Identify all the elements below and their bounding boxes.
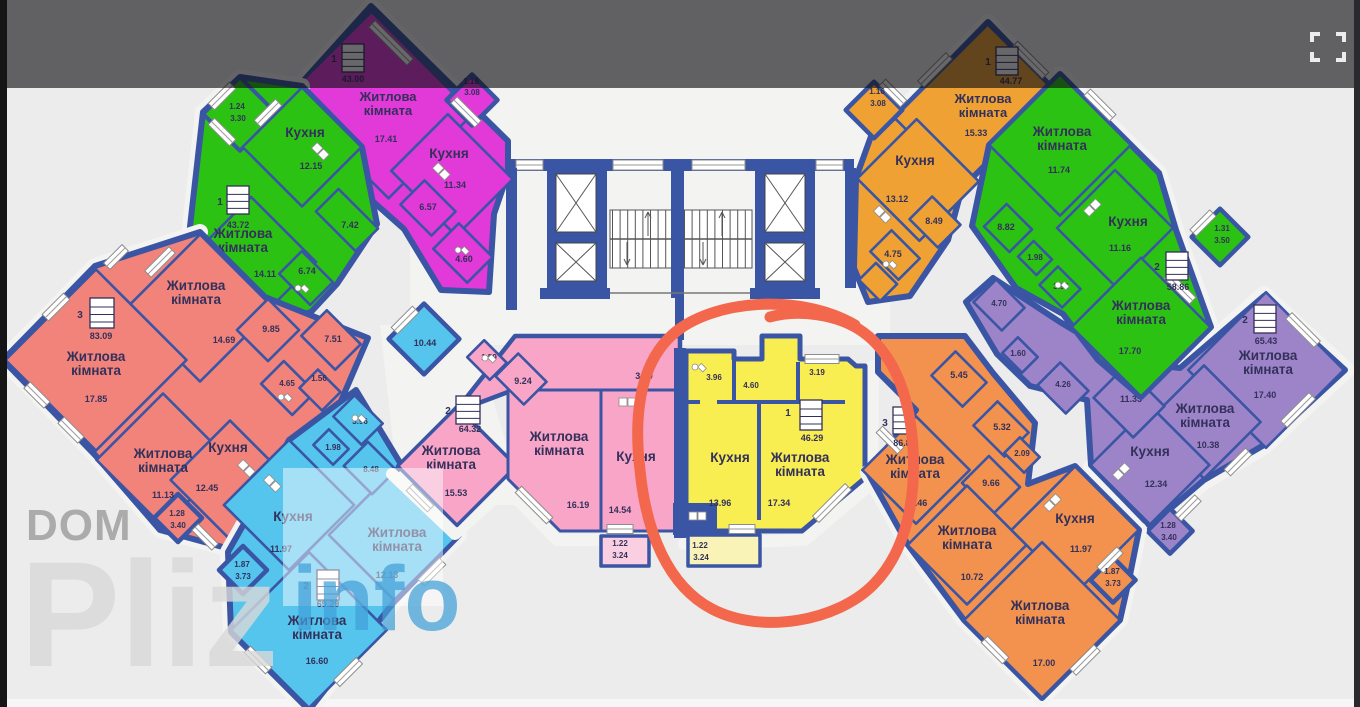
svg-text:1: 1 xyxy=(785,408,791,419)
svg-text:3.24: 3.24 xyxy=(693,553,709,562)
svg-text:1: 1 xyxy=(217,197,223,208)
svg-text:1.60: 1.60 xyxy=(1010,349,1026,358)
svg-text:Житлова: Житлова xyxy=(1032,124,1092,139)
svg-text:17.00: 17.00 xyxy=(1033,658,1056,668)
svg-text:16.60: 16.60 xyxy=(306,656,329,666)
svg-text:13.12: 13.12 xyxy=(886,194,909,204)
svg-text:3.19: 3.19 xyxy=(809,368,825,377)
svg-text:Житлова: Житлова xyxy=(166,278,226,293)
svg-text:15.33: 15.33 xyxy=(965,128,988,138)
svg-text:3: 3 xyxy=(882,418,888,429)
svg-text:Житлова: Житлова xyxy=(1238,348,1298,363)
svg-text:3.40: 3.40 xyxy=(170,521,186,530)
svg-text:кімната: кімната xyxy=(138,460,188,475)
svg-text:Житлова: Житлова xyxy=(770,450,830,465)
svg-text:Житлова: Житлова xyxy=(953,91,1012,106)
svg-text:Житлова: Житлова xyxy=(358,89,417,104)
svg-text:Житлова: Житлова xyxy=(213,226,273,241)
svg-text:кімната: кімната xyxy=(775,464,825,479)
svg-text:Житлова: Житлова xyxy=(1175,401,1235,416)
svg-text:4.65: 4.65 xyxy=(279,379,295,388)
svg-text:10.38: 10.38 xyxy=(1197,440,1220,450)
svg-text:3.73: 3.73 xyxy=(1105,579,1121,588)
svg-text:Кухня: Кухня xyxy=(285,125,324,140)
svg-text:10.72: 10.72 xyxy=(961,572,984,582)
svg-text:кімната: кімната xyxy=(1037,138,1087,153)
svg-text:1.87: 1.87 xyxy=(1104,567,1120,576)
svg-text:6.74: 6.74 xyxy=(298,266,316,276)
svg-text:3.24: 3.24 xyxy=(612,551,628,560)
svg-text:Житлова: Житлова xyxy=(1111,298,1171,313)
svg-text:9.85: 9.85 xyxy=(262,324,280,334)
svg-text:Кухня: Кухня xyxy=(710,450,749,465)
svg-text:1.98: 1.98 xyxy=(1027,253,1043,262)
svg-text:17.34: 17.34 xyxy=(768,498,791,508)
svg-text:14.69: 14.69 xyxy=(213,335,236,345)
svg-text:info: info xyxy=(292,548,461,650)
svg-text:3.30: 3.30 xyxy=(230,114,246,123)
svg-text:12.45: 12.45 xyxy=(196,483,219,493)
svg-text:1.31: 1.31 xyxy=(1214,224,1230,233)
svg-text:3.08: 3.08 xyxy=(464,88,480,97)
svg-text:9.24: 9.24 xyxy=(514,376,532,386)
svg-text:15.53: 15.53 xyxy=(445,488,468,498)
svg-text:кімната: кімната xyxy=(1116,312,1166,327)
svg-text:3.40: 3.40 xyxy=(1161,533,1177,542)
svg-text:3.08: 3.08 xyxy=(870,99,886,108)
svg-text:кімната: кімната xyxy=(534,443,584,458)
svg-text:58.86: 58.86 xyxy=(1167,282,1190,292)
svg-text:4.60: 4.60 xyxy=(455,254,473,264)
svg-text:8.49: 8.49 xyxy=(925,216,943,226)
svg-text:14.11: 14.11 xyxy=(254,269,276,279)
svg-text:кімната: кімната xyxy=(1015,612,1065,627)
svg-text:14.54: 14.54 xyxy=(609,505,632,515)
svg-text:Кухня: Кухня xyxy=(1130,444,1169,459)
svg-text:1.98: 1.98 xyxy=(325,443,341,452)
svg-text:Житлова: Житлова xyxy=(937,523,997,538)
svg-text:Житлова: Житлова xyxy=(529,429,589,444)
svg-text:Кухня: Кухня xyxy=(208,440,247,455)
svg-text:Житлова: Житлова xyxy=(133,446,193,461)
svg-text:4.60: 4.60 xyxy=(743,381,759,390)
svg-text:5.32: 5.32 xyxy=(993,422,1011,432)
svg-text:2.09: 2.09 xyxy=(1014,449,1030,458)
svg-text:11.13: 11.13 xyxy=(152,490,174,500)
svg-text:16.19: 16.19 xyxy=(567,500,590,510)
svg-text:6.57: 6.57 xyxy=(419,202,437,212)
svg-text:Кухня: Кухня xyxy=(1055,511,1094,526)
svg-text:5.45: 5.45 xyxy=(950,370,968,380)
svg-text:Pliz: Pliz xyxy=(20,530,278,698)
svg-text:кімната: кімната xyxy=(959,105,1008,120)
svg-text:13.96: 13.96 xyxy=(709,498,732,508)
svg-text:1.56: 1.56 xyxy=(311,374,327,383)
svg-text:кімната: кімната xyxy=(71,363,121,378)
svg-text:кімната: кімната xyxy=(942,537,992,552)
svg-text:7.51: 7.51 xyxy=(324,334,342,344)
svg-text:Кухня: Кухня xyxy=(429,146,468,161)
svg-text:64.32: 64.32 xyxy=(459,424,482,434)
svg-text:Житлова: Житлова xyxy=(1010,598,1070,613)
svg-text:11.74: 11.74 xyxy=(1048,165,1070,175)
svg-text:10.44: 10.44 xyxy=(414,338,437,348)
svg-text:17.40: 17.40 xyxy=(1254,390,1277,400)
svg-text:кімната: кімната xyxy=(364,103,413,118)
svg-text:4.70: 4.70 xyxy=(991,299,1007,308)
svg-text:83.09: 83.09 xyxy=(90,331,113,341)
svg-text:Кухня: Кухня xyxy=(1108,214,1147,229)
svg-text:1.16: 1.16 xyxy=(869,87,885,96)
svg-text:17.70: 17.70 xyxy=(1119,346,1142,356)
svg-text:1.22: 1.22 xyxy=(612,539,628,548)
svg-text:7.42: 7.42 xyxy=(341,220,359,230)
svg-text:3: 3 xyxy=(77,310,83,321)
svg-text:Житлова: Житлова xyxy=(66,349,126,364)
svg-text:8.82: 8.82 xyxy=(997,222,1015,232)
svg-text:4.75: 4.75 xyxy=(884,249,902,259)
svg-text:Кухня: Кухня xyxy=(895,153,934,168)
svg-text:12.15: 12.15 xyxy=(300,161,323,171)
svg-text:1.28: 1.28 xyxy=(169,509,185,518)
svg-text:11.97: 11.97 xyxy=(1070,544,1092,554)
svg-text:Житлова: Житлова xyxy=(421,443,481,458)
svg-text:3.50: 3.50 xyxy=(1214,236,1230,245)
svg-text:3.96: 3.96 xyxy=(706,373,722,382)
svg-text:4.26: 4.26 xyxy=(1055,380,1071,389)
svg-text:кімната: кімната xyxy=(1243,362,1293,377)
svg-text:9.66: 9.66 xyxy=(982,478,1000,488)
svg-text:11.34: 11.34 xyxy=(444,180,466,190)
svg-text:11.16: 11.16 xyxy=(1109,243,1131,253)
svg-text:65.43: 65.43 xyxy=(1255,336,1278,346)
svg-text:1.28: 1.28 xyxy=(1160,521,1176,530)
svg-text:2: 2 xyxy=(1242,315,1248,326)
svg-text:17.85: 17.85 xyxy=(85,394,108,404)
svg-text:1.22: 1.22 xyxy=(692,541,708,550)
svg-text:12.34: 12.34 xyxy=(1145,479,1168,489)
svg-text:17.41: 17.41 xyxy=(375,134,398,144)
svg-text:кімната: кімната xyxy=(1180,415,1230,430)
svg-text:1.24: 1.24 xyxy=(229,102,245,111)
svg-text:кімната: кімната xyxy=(171,292,221,307)
svg-text:46.29: 46.29 xyxy=(801,433,824,443)
svg-text:2: 2 xyxy=(445,406,451,417)
svg-text:2: 2 xyxy=(1154,262,1160,273)
svg-text:кімната: кімната xyxy=(218,240,268,255)
